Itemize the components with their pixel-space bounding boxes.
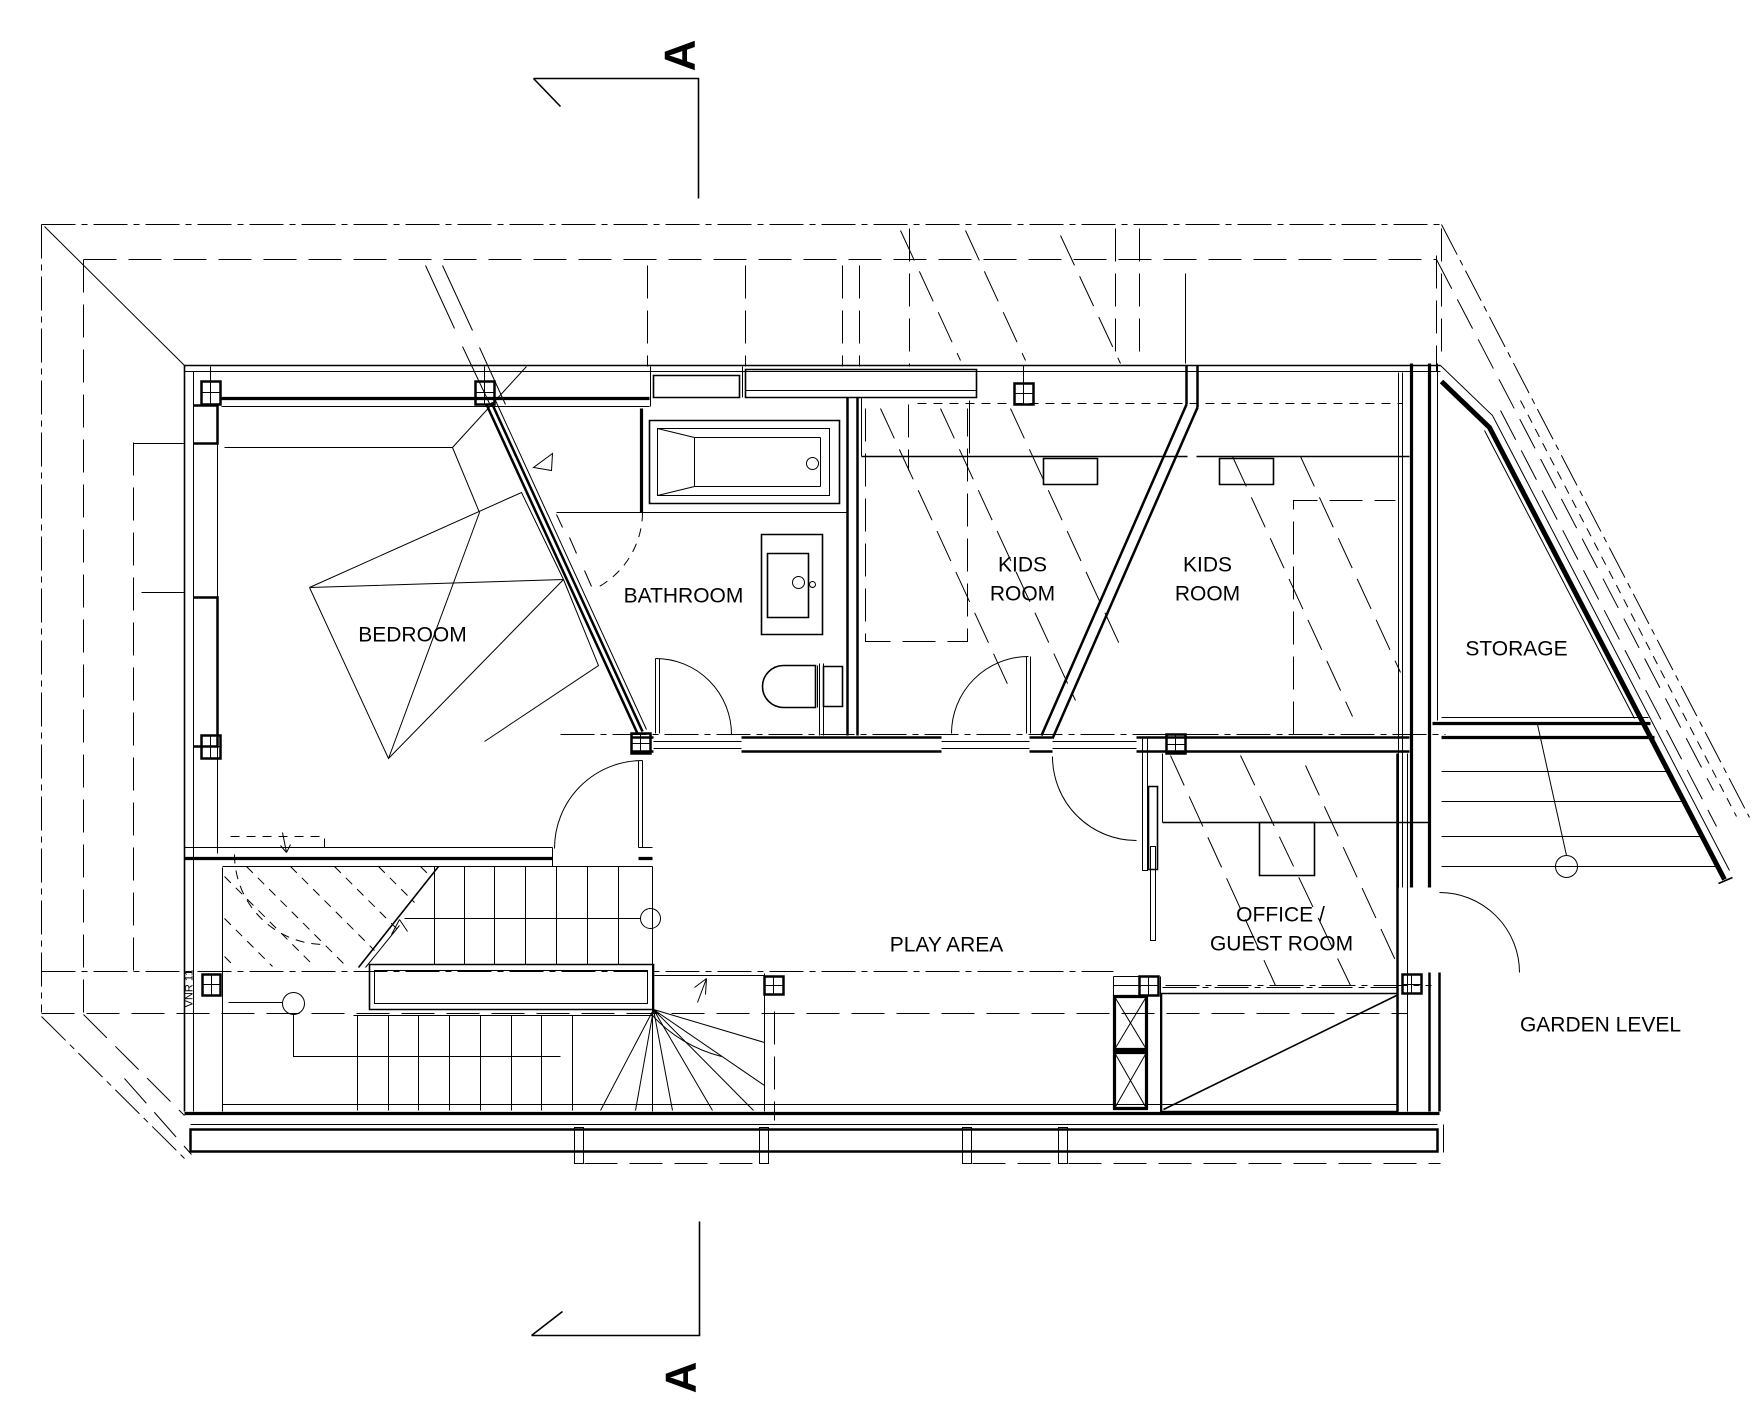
svg-text:PLAY AREA: PLAY AREA [890,934,1004,957]
svg-text:VNR 11: VNR 11 [183,970,195,1008]
svg-text:GARDEN LEVEL: GARDEN LEVEL [1520,1014,1681,1037]
svg-text:A: A [656,1362,705,1394]
svg-text:KIDS: KIDS [998,554,1047,577]
svg-text:BATHROOM: BATHROOM [624,585,744,608]
svg-text:BEDROOM: BEDROOM [358,624,467,647]
svg-text:GUEST ROOM: GUEST ROOM [1210,933,1353,956]
svg-text:OFFICE /: OFFICE / [1236,904,1325,927]
svg-text:A: A [655,40,704,72]
svg-text:ROOM: ROOM [1175,583,1240,606]
svg-text:KIDS: KIDS [1183,554,1232,577]
svg-text:STORAGE: STORAGE [1465,638,1567,661]
svg-text:ROOM: ROOM [990,583,1055,606]
